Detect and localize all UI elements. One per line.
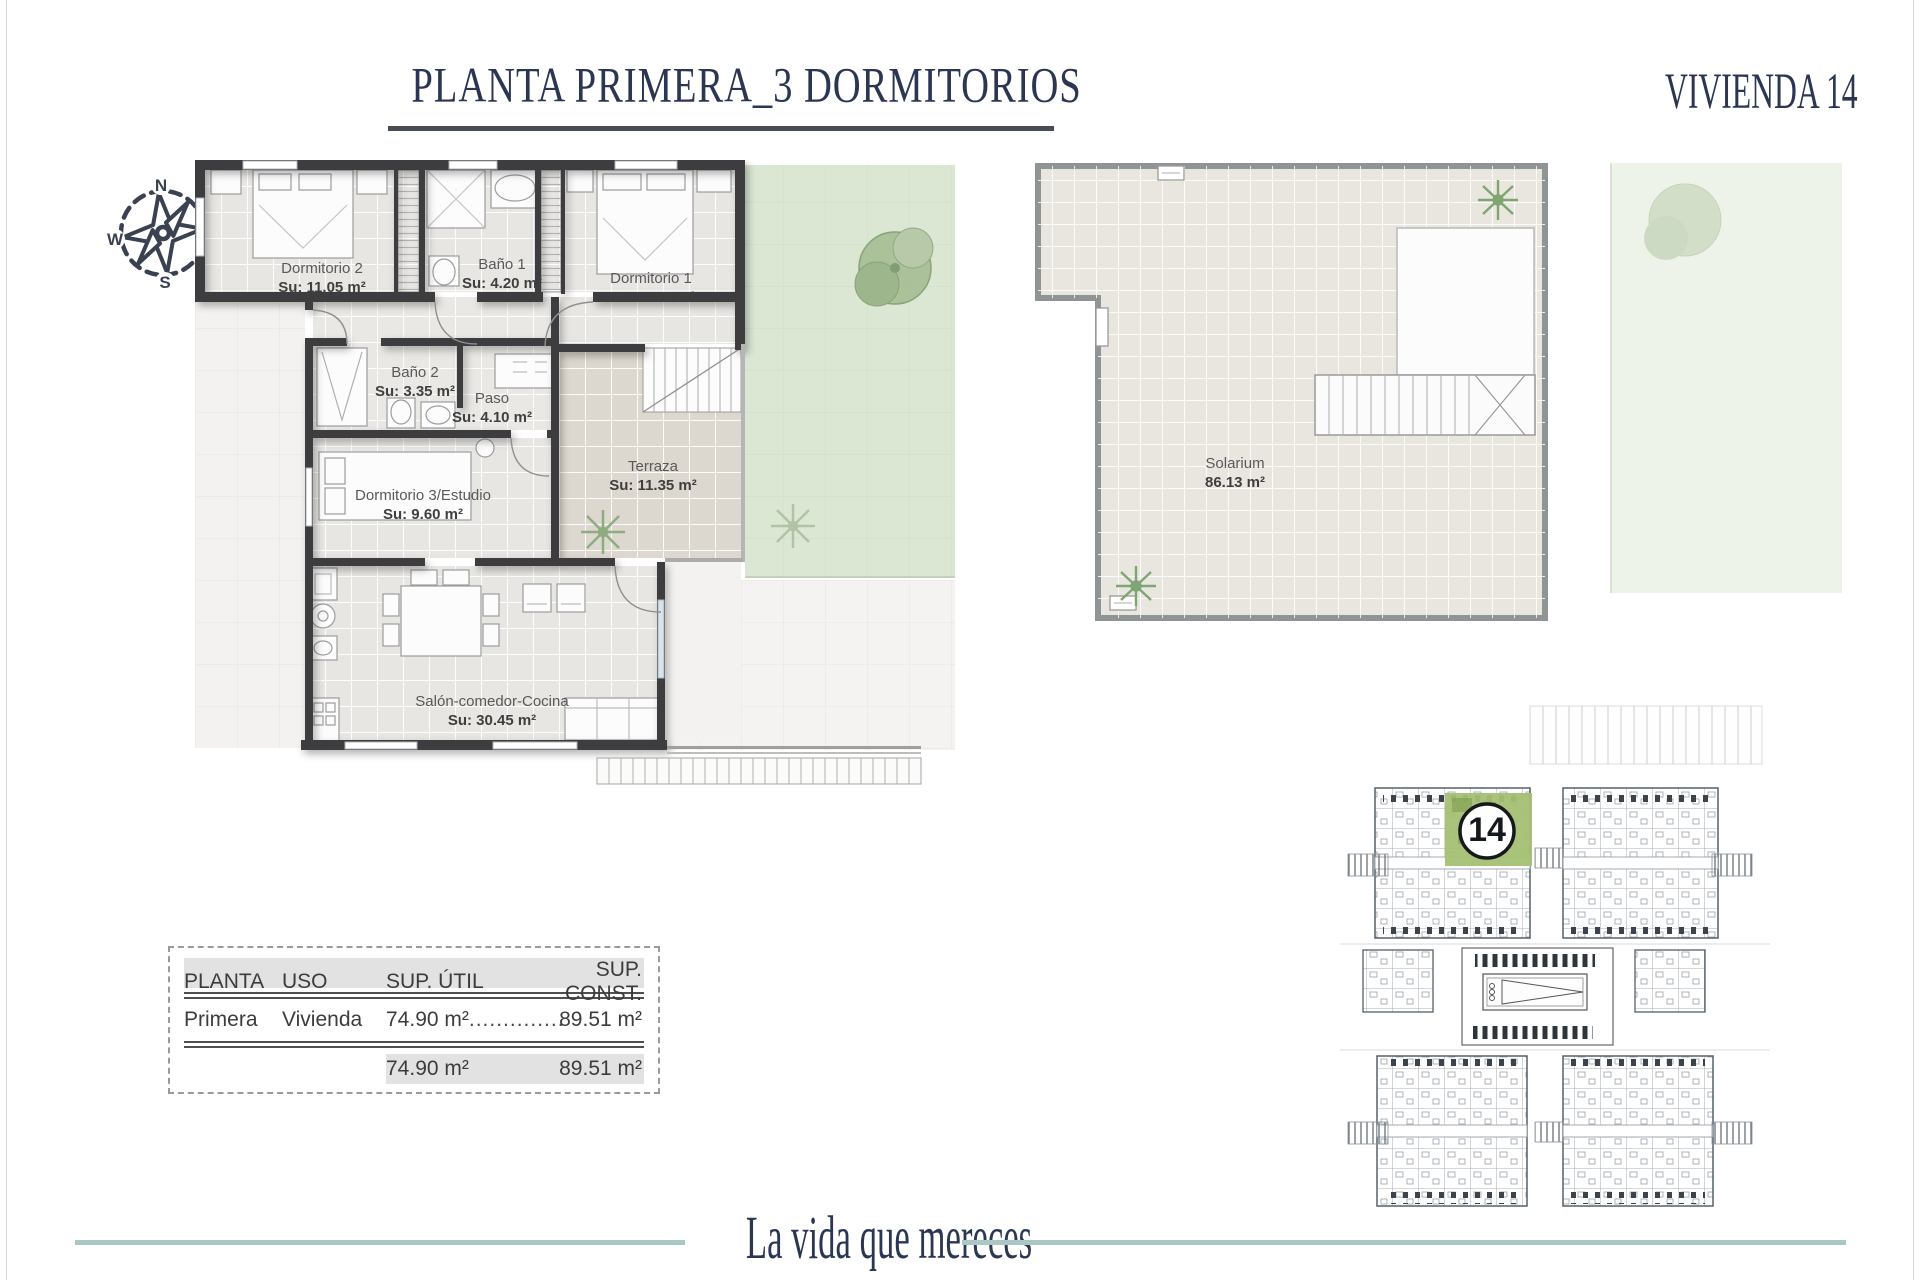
room-label-bano-1: Baño 1Su: 4.20 m² bbox=[462, 256, 542, 294]
room-label-solarium: Solarium86.13 m² bbox=[1205, 455, 1265, 493]
terrace-stairs bbox=[643, 348, 741, 412]
garden-steps bbox=[597, 746, 921, 784]
compass-s: S bbox=[159, 273, 170, 292]
faded-steps bbox=[1530, 706, 1762, 764]
footer-rule-left bbox=[75, 1240, 685, 1245]
terrace-palm-icon bbox=[581, 510, 625, 554]
terrace-garden-border bbox=[741, 344, 745, 562]
footer-rule-right bbox=[962, 1240, 1846, 1245]
room-label-salon: Salón-comedor-CocinaSu: 30.45 m² bbox=[415, 693, 568, 731]
garden bbox=[745, 165, 955, 578]
total-sup-util: 74.90 m² bbox=[386, 1054, 544, 1084]
room-label-dormitorio-1: Dormitorio 1Su: 12.15 m² bbox=[607, 270, 695, 308]
palm-icon bbox=[771, 504, 815, 548]
unit-title: VIVIENDA 14 bbox=[1665, 62, 1858, 121]
areas-table: PLANTA USO SUP. ÚTIL SUP. CONST. Primera… bbox=[168, 946, 660, 1094]
first-floor-plan: Dormitorio 2Su: 11.05 m² Baño 1Su: 4.20 … bbox=[195, 160, 955, 788]
col-sup-util: SUP. ÚTIL bbox=[386, 970, 544, 994]
footer-tagline: La vida que mereces bbox=[746, 1203, 902, 1273]
table-divider-2 bbox=[184, 1041, 644, 1048]
page-border-left bbox=[6, 0, 7, 1280]
page-border-right bbox=[1913, 0, 1914, 1280]
site-key-plan: 14 bbox=[1340, 768, 1770, 1220]
total-sup-const: 89.51 m² bbox=[544, 1054, 644, 1084]
room-label-bano-2: Baño 2Su: 3.35 m² bbox=[375, 364, 455, 402]
room-label-dormitorio-3: Dormitorio 3/EstudioSu: 9.60 m² bbox=[355, 487, 491, 525]
terrace-low-wall bbox=[665, 558, 743, 562]
page-title: PLANTA PRIMERA_3 DORMITORIOS bbox=[411, 58, 1018, 115]
courtyard-pool bbox=[1462, 948, 1613, 1045]
cell-planta: Primera bbox=[184, 1008, 282, 1032]
room-label-paso: PasoSu: 4.10 m² bbox=[452, 390, 532, 428]
title-underline bbox=[388, 126, 1054, 131]
compass-w: W bbox=[107, 230, 124, 249]
compass-n: N bbox=[155, 176, 167, 195]
solarium-plan: Solarium86.13 m² bbox=[1030, 158, 1850, 783]
areas-table-header: PLANTA USO SUP. ÚTIL SUP. CONST. bbox=[184, 958, 644, 988]
cell-sup-const: 89.51 m² bbox=[544, 1008, 644, 1032]
highlighted-unit: 14 bbox=[1445, 793, 1532, 866]
cell-uso: Vivienda bbox=[282, 1008, 386, 1032]
faded-garden bbox=[1610, 163, 1842, 593]
room-label-terraza: TerrazaSu: 11.35 m² bbox=[609, 458, 697, 496]
cell-sup-util: 74.90 m².............. bbox=[386, 1008, 544, 1032]
room-label-dormitorio-2: Dormitorio 2Su: 11.05 m² bbox=[278, 260, 366, 298]
col-planta: PLANTA bbox=[184, 970, 282, 994]
unit-badge-number: 14 bbox=[1468, 811, 1506, 849]
areas-table-row: Primera Vivienda 74.90 m².............. … bbox=[184, 1003, 644, 1037]
col-uso: USO bbox=[282, 970, 386, 994]
areas-table-totals: 74.90 m² 89.51 m² bbox=[184, 1054, 644, 1084]
col-sup-const: SUP. CONST. bbox=[544, 958, 644, 1006]
